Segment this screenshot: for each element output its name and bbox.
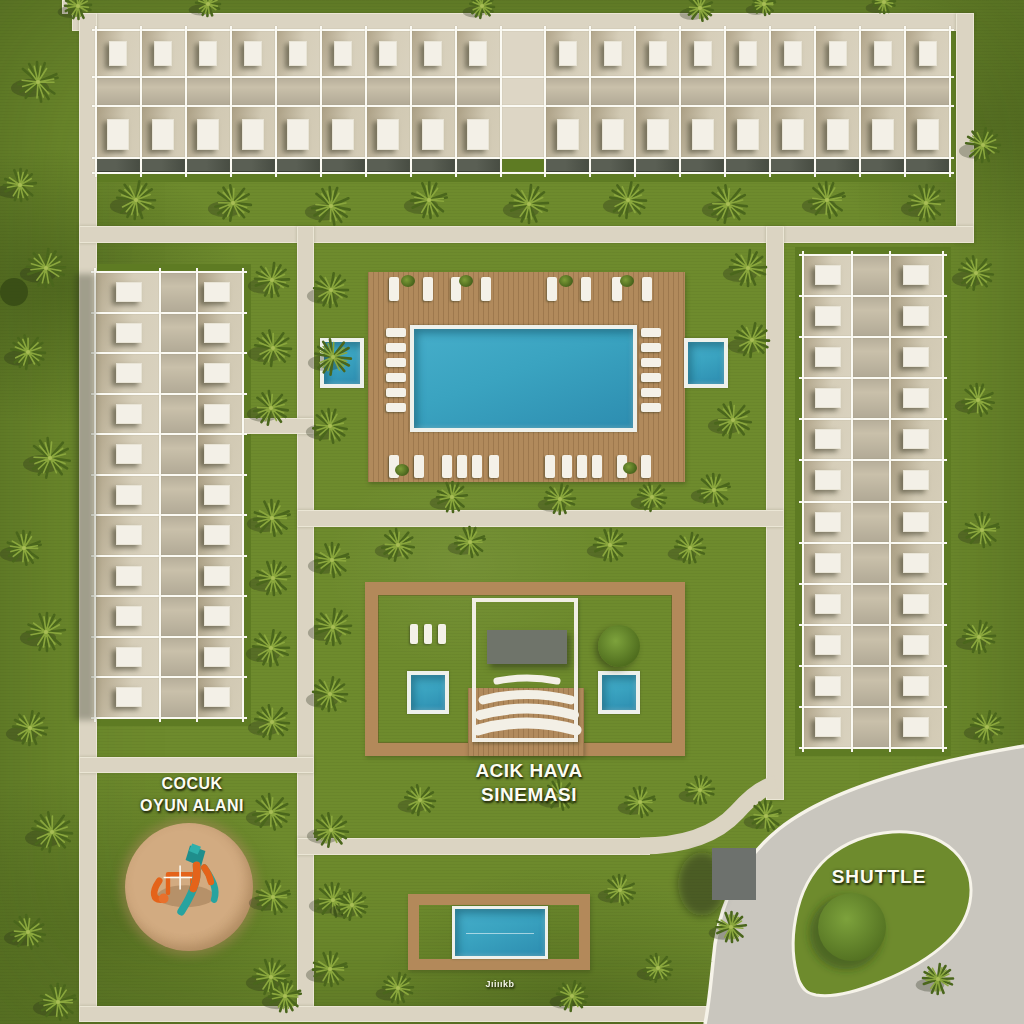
palm-tree [527,202,531,206]
palm-tree [28,726,32,730]
palm-tree [331,355,335,359]
palm-tree [427,198,431,202]
palm-tree [650,495,654,499]
palm-tree [269,406,273,410]
palm-tree [231,201,235,205]
palm-tree [331,898,335,902]
palm-tree [731,418,735,422]
palm-tree [688,546,692,550]
palm-tree [985,725,989,729]
palm-tree [350,903,354,907]
playground-label-line1: COCUK [161,775,222,793]
palm-tree [44,630,48,634]
palm-tree [18,183,22,187]
palm-tree [656,966,660,970]
palm-tree [882,0,886,4]
palm-tree [396,543,400,547]
palm-tree [328,692,332,696]
palm-tree [269,646,273,650]
palm-tree [0,278,28,306]
palm-tree [480,4,484,8]
palm-tree [269,810,273,814]
palm-tree [974,271,978,275]
palm-tree [206,2,210,6]
palm-tree [726,202,730,206]
palm-tree [26,930,30,934]
palm-tree [418,798,422,802]
palm-tree [329,288,333,292]
palm-tree [750,338,754,342]
palm-tree [936,977,940,981]
kids-pool-caption: Jıiııkb [485,979,514,989]
palm-tree [468,540,472,544]
palm-tree [76,4,80,8]
palm-tree [271,895,275,899]
palm-tree [270,278,274,282]
palm-tree [618,888,622,892]
cinema-label-line2: SINEMASI [481,784,577,806]
playground-label-line2: OYUN ALANI [140,797,244,815]
palm-tree [44,266,48,270]
palm-tree [328,424,332,428]
palm-tree [329,204,333,208]
palm-tree [558,497,562,501]
palm-tree [271,346,275,350]
palm-tree [825,198,829,202]
palm-tree [698,788,702,792]
palm-tree [608,543,612,547]
palm-tree [330,558,334,562]
resort-site-plan: COCUK OYUN ALANI ACIK HAVA SINEMASI SHUT… [0,0,1024,1024]
palm-tree [270,516,274,520]
palm-tree [746,266,750,270]
palm-tree [331,625,335,629]
palm-tree [980,528,984,532]
palm-tree [271,576,275,580]
palm-tree [26,350,30,354]
palm-tree [283,994,287,998]
palm-tree [638,800,642,804]
palm-tree [977,635,981,639]
palm-tree [56,1000,60,1004]
palm-tree [981,143,985,147]
palm-tree [328,967,332,971]
shuttle-label: SHUTTLE [832,866,927,888]
palm-tree [134,198,138,202]
cinema-label-line1: ACIK HAVA [475,760,582,782]
palm-tree [698,6,702,10]
palm-tree [269,975,273,979]
palm-tree [626,198,630,202]
palm-tree [50,830,54,834]
palm-tree [976,398,980,402]
palm-tree [570,994,574,998]
palm-tree [924,201,928,205]
palm-tree [36,80,40,84]
palm-tree [270,720,274,724]
palm-tree [329,828,333,832]
palm-tree [729,925,733,929]
palm-tree [22,546,26,550]
palm-tree [762,2,766,6]
palm-tree [712,488,716,492]
palm-tree [396,986,400,990]
palm-tree [48,456,52,460]
palm-tree [450,495,454,499]
palm-tree [764,814,768,818]
